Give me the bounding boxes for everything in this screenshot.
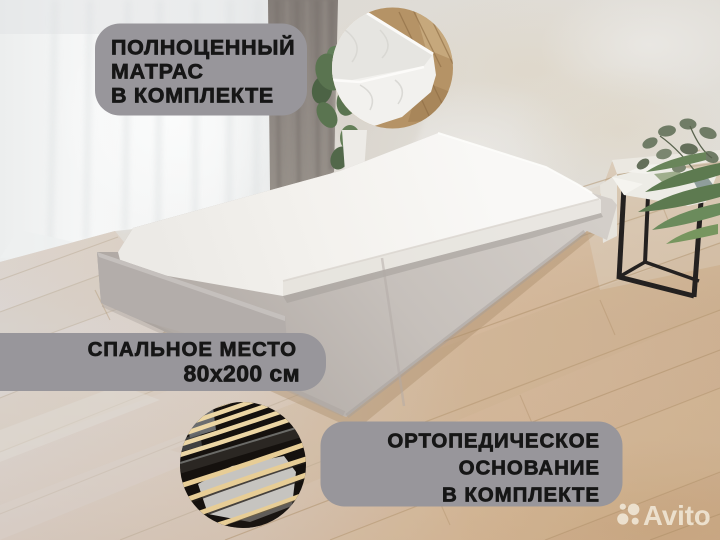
svg-text:В КОМПЛЕКТЕ: В КОМПЛЕКТЕ (442, 484, 600, 507)
svg-text:МАТРАС: МАТРАС (111, 60, 204, 84)
svg-text:80х200 см: 80х200 см (183, 361, 300, 387)
svg-text:Avito: Avito (643, 500, 711, 531)
svg-text:В КОМПЛЕКТЕ: В КОМПЛЕКТЕ (111, 84, 274, 108)
svg-text:ОРТОПЕДИЧЕСКОЕ: ОРТОПЕДИЧЕСКОЕ (387, 430, 600, 453)
svg-text:ОСНОВАНИЕ: ОСНОВАНИЕ (459, 457, 600, 480)
svg-text:СПАЛЬНОЕ МЕСТО: СПАЛЬНОЕ МЕСТО (88, 338, 297, 361)
svg-text:ПОЛНОЦЕННЫЙ: ПОЛНОЦЕННЫЙ (111, 35, 295, 60)
